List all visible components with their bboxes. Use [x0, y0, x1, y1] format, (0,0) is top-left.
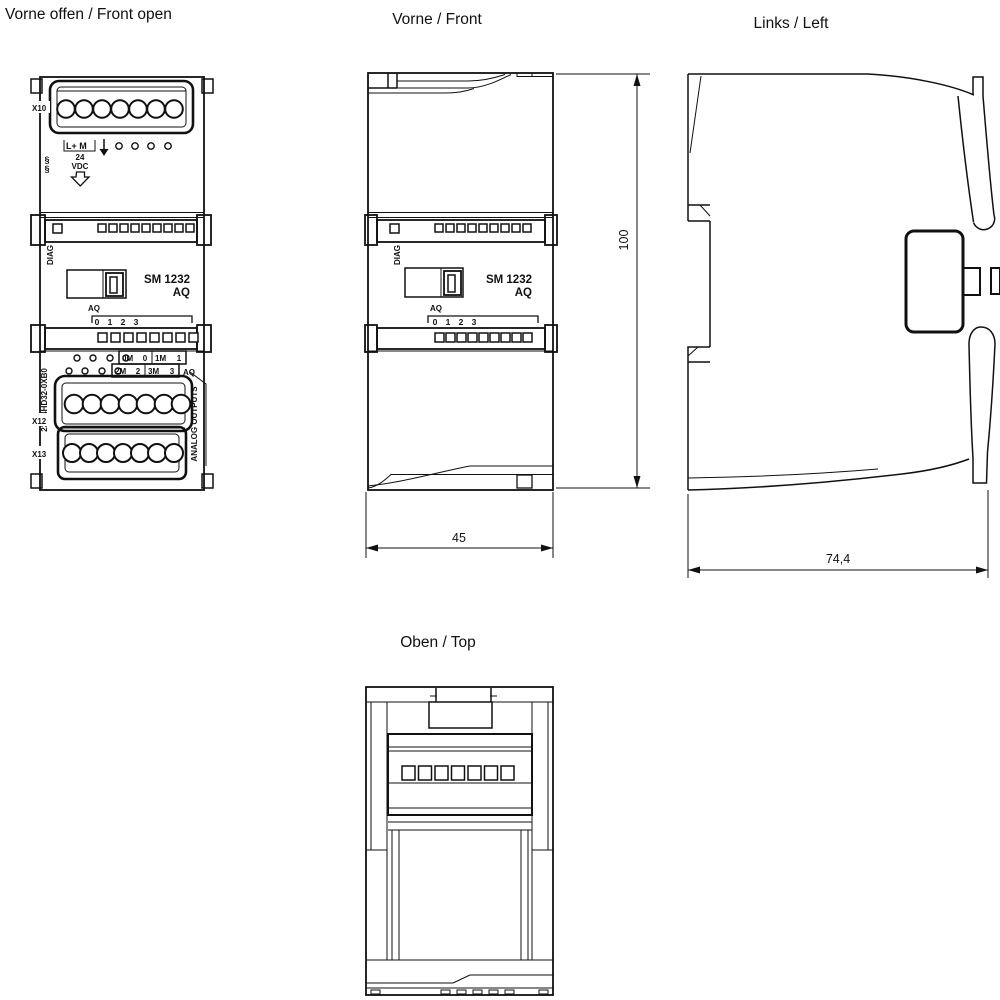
terminal-holes-x12	[65, 395, 191, 414]
connector-tab	[963, 268, 980, 295]
channel-3: 3	[134, 317, 139, 327]
led-strip-lower-front	[365, 325, 557, 352]
aq-channel-bracket-front: AQ 0 1 2 3	[428, 304, 538, 327]
label-vdc: VDC	[72, 162, 89, 171]
technical-drawing: Vorne offen / Front open Vorne / Front L…	[0, 0, 1000, 1000]
din-clip	[429, 688, 497, 728]
dimension-height: 100	[556, 74, 650, 488]
label-diag: DIAG	[46, 245, 55, 265]
t-3m: 3M	[148, 367, 159, 376]
channel-0-front: 0	[433, 317, 438, 327]
drawing-canvas: Vorne offen / Front open Vorne / Front L…	[0, 0, 1000, 1000]
t-0m: 0M	[122, 354, 133, 363]
led-strip-upper	[31, 215, 211, 245]
top-terminal-squares	[402, 766, 514, 780]
label-x13: X13	[32, 450, 47, 459]
bus-connector	[906, 231, 1000, 332]
module-type: AQ	[173, 287, 190, 299]
label-diag-front: DIAG	[393, 245, 402, 265]
view-top	[366, 687, 553, 995]
t-1: 1	[177, 354, 182, 363]
led-squares-upper-front	[390, 224, 531, 233]
dim-45: 45	[452, 531, 466, 545]
module-type-front: AQ	[515, 287, 532, 299]
module-name-front: SM 1232	[486, 274, 532, 286]
dimension-width: 45	[366, 492, 553, 558]
vdc-arrow-icon	[72, 172, 90, 186]
t-3: 3	[170, 367, 175, 376]
view-front-open: X10 L+ M 24 VDC § §	[31, 77, 213, 490]
top-rear-band	[366, 975, 553, 994]
led-squares-lower-front	[435, 333, 532, 342]
terminal-holes-x13	[63, 444, 183, 462]
channel-1-front: 1	[446, 317, 451, 327]
label-x12: X12	[32, 417, 47, 426]
t-1m: 1M	[155, 354, 166, 363]
top-opening	[366, 822, 553, 960]
top-connector	[388, 734, 532, 815]
terminal-holes-x10	[57, 100, 183, 118]
channel-1: 1	[108, 317, 113, 327]
address-switch	[67, 270, 126, 298]
side-walls	[366, 702, 553, 960]
cover-bottom-seams	[368, 466, 553, 488]
led-strip-lower	[31, 325, 211, 352]
terminal-block-x12: X12	[31, 376, 192, 431]
side-profile	[688, 74, 995, 490]
address-switch-front	[405, 268, 463, 297]
view-front: DIAG SM 1232 AQ AQ 0 1 2 3	[365, 73, 650, 558]
label-power: L+ M	[66, 141, 87, 151]
led-squares-lower	[98, 333, 198, 342]
dimension-depth: 74,4	[688, 490, 988, 578]
channel-2-front: 2	[459, 317, 464, 327]
module-name: SM 1232	[144, 274, 190, 286]
terminal-block-x13: X13	[31, 427, 186, 479]
t-2m: 2M	[115, 367, 126, 376]
label-aq-front: AQ	[430, 304, 442, 313]
terminal-dots-top	[116, 143, 171, 149]
ground-icon	[100, 139, 109, 156]
title-left: Links / Left	[754, 15, 830, 32]
channel-3-front: 3	[472, 317, 477, 327]
power-legend: L+ M 24 VDC § §	[44, 139, 171, 186]
label-24: 24	[76, 153, 85, 162]
title-top: Oben / Top	[400, 634, 476, 651]
cover-top-seams	[368, 73, 553, 93]
aq-channel-bracket: AQ 0 1 2 3	[88, 304, 192, 327]
spring-symbol-icon: §	[44, 164, 49, 174]
terminal-block-x10: X10	[31, 81, 193, 133]
top-right-tab	[973, 77, 983, 96]
terminal-dots-row1	[74, 355, 129, 361]
dim-100: 100	[617, 230, 631, 251]
title-front: Vorne / Front	[392, 11, 482, 28]
led-squares-upper	[53, 224, 194, 233]
led-strip-upper-front	[365, 215, 557, 245]
channel-0: 0	[95, 317, 100, 327]
t-0: 0	[143, 354, 148, 363]
title-front-open: Vorne offen / Front open	[5, 6, 172, 23]
label-aq: AQ	[88, 304, 100, 313]
connector-pin	[991, 268, 1000, 294]
view-left: 74,4	[688, 74, 1000, 578]
t-2: 2	[136, 367, 141, 376]
rear-vents	[371, 990, 548, 994]
channel-2: 2	[121, 317, 126, 327]
label-x10: X10	[32, 104, 47, 113]
dim-74-4: 74,4	[826, 552, 850, 566]
